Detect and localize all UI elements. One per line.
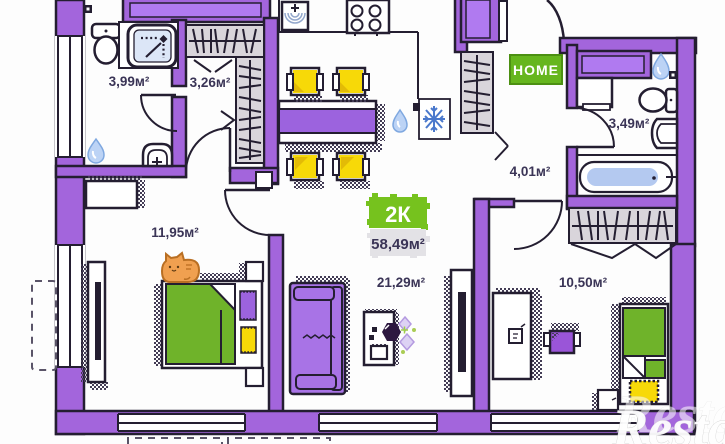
svg-text:10,50м²: 10,50м² [559,275,608,290]
svg-text:58,49м²: 58,49м² [371,236,425,253]
svg-text:4,01м²: 4,01м² [510,164,551,179]
svg-text:21,29м²: 21,29м² [377,275,426,290]
svg-text:3,26м²: 3,26м² [190,75,231,90]
svg-text:3,49м²: 3,49м² [609,116,650,131]
svg-text:11,95м²: 11,95м² [151,225,199,240]
svg-text:HOME: HOME [513,62,559,78]
svg-text:2К: 2К [385,202,411,227]
svg-text:Restate: Restate [611,398,725,444]
svg-text:3,99м²: 3,99м² [109,74,150,89]
